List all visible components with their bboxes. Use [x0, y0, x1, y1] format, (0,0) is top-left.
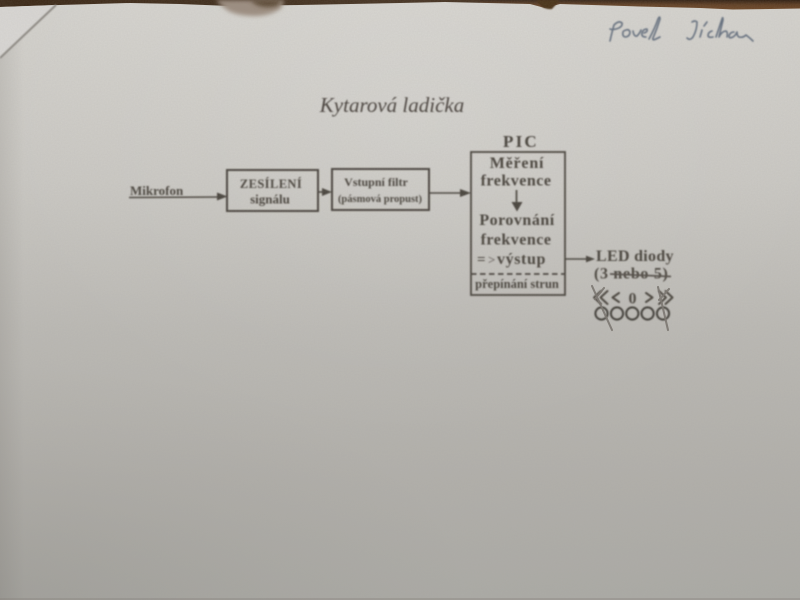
- svg-text:0: 0: [629, 291, 637, 308]
- svg-text:signálu: signálu: [250, 192, 290, 207]
- svg-text:Mikrofon: Mikrofon: [130, 183, 184, 198]
- svg-text:LED diody: LED diody: [596, 248, 674, 265]
- svg-text:(3 nebo 5): (3 nebo 5): [594, 266, 669, 283]
- svg-text:ZESÍLENÍ: ZESÍLENÍ: [240, 177, 302, 191]
- svg-text:přepínání strun: přepínání strun: [475, 277, 559, 291]
- svg-text:PIC: PIC: [503, 132, 539, 151]
- svg-text:Kytarová ladička: Kytarová ladička: [319, 93, 464, 117]
- svg-text:Měření: Měření: [490, 155, 545, 172]
- svg-text:Vstupní filtr: Vstupní filtr: [344, 175, 408, 189]
- svg-text:>: >: [488, 252, 495, 267]
- svg-text:frekvence: frekvence: [481, 173, 552, 190]
- svg-text:výstup: výstup: [497, 251, 546, 268]
- svg-text:(pásmová propust): (pásmová propust): [338, 194, 423, 205]
- svg-text:=: =: [477, 252, 486, 268]
- svg-text:frekvence: frekvence: [481, 232, 552, 249]
- svg-text:Porovnání: Porovnání: [479, 212, 554, 229]
